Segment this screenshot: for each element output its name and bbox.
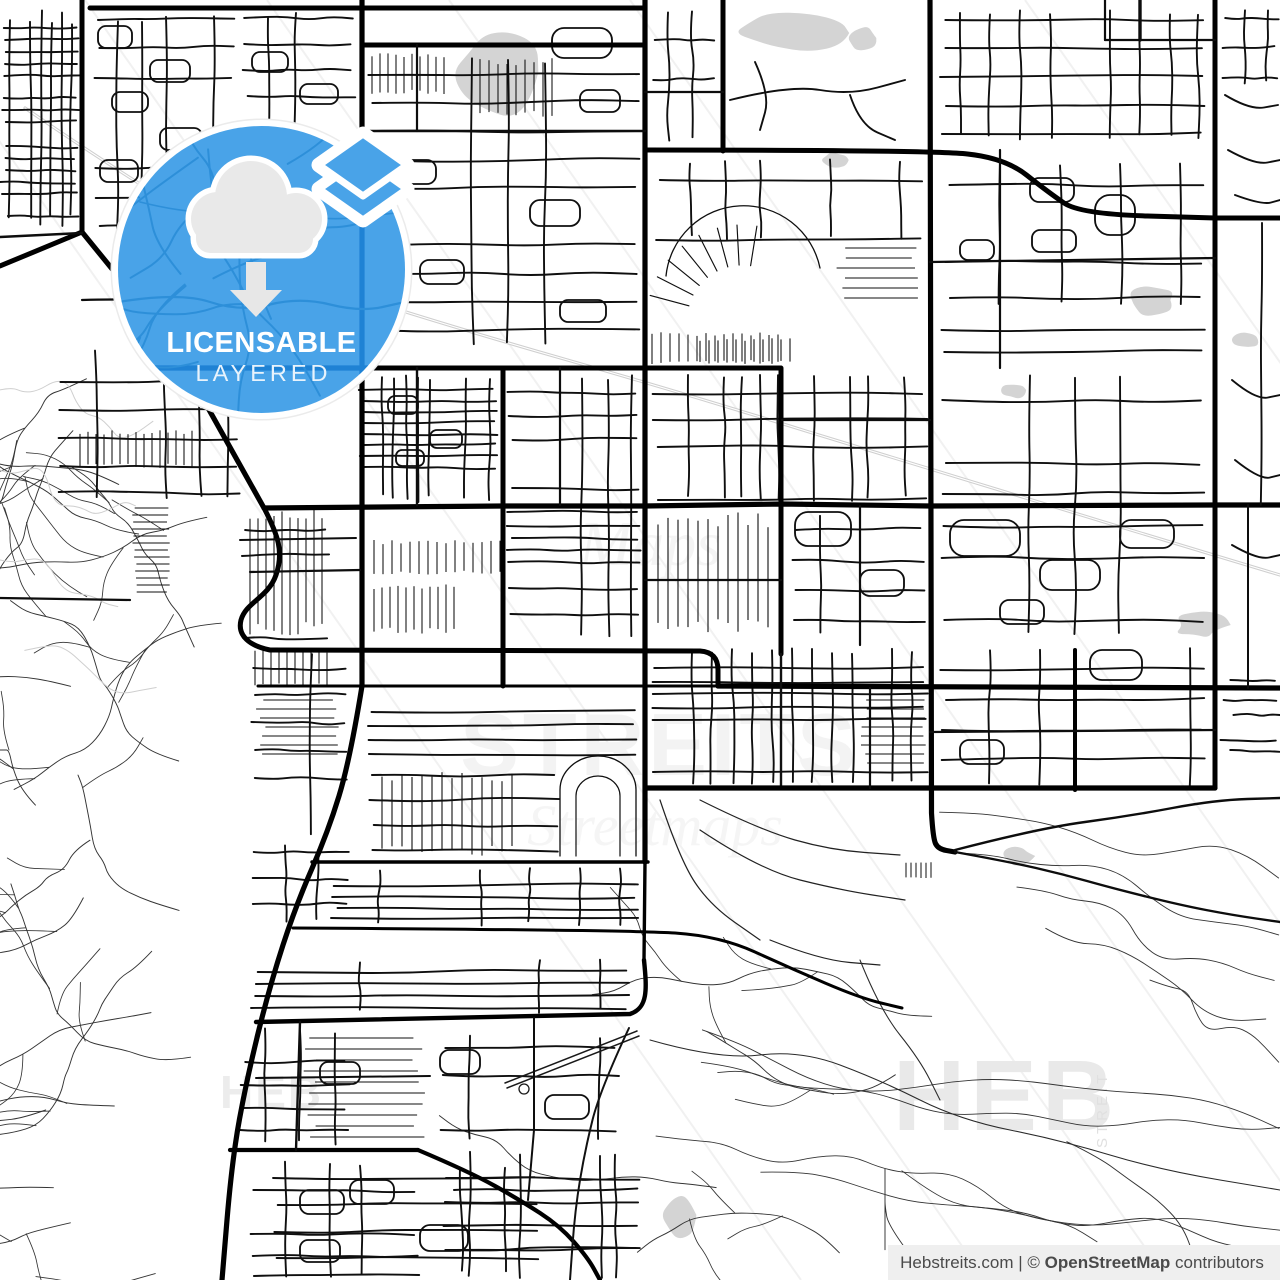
svg-text:LAYERED: LAYERED	[196, 360, 332, 386]
svg-text:STREIT: STREIT	[1094, 1071, 1111, 1148]
svg-text:LICENSABLE: LICENSABLE	[166, 327, 356, 359]
svg-text:Maps: Maps	[578, 508, 721, 579]
svg-text:Streetmaps: Streetmaps	[527, 793, 783, 858]
svg-text:STREITS: STREITS	[460, 695, 860, 794]
svg-text:Hebstreits.com | © OpenStreetM: Hebstreits.com | © OpenStreetMap contrib…	[900, 1253, 1264, 1272]
svg-text:HEB: HEB	[893, 1040, 1119, 1152]
